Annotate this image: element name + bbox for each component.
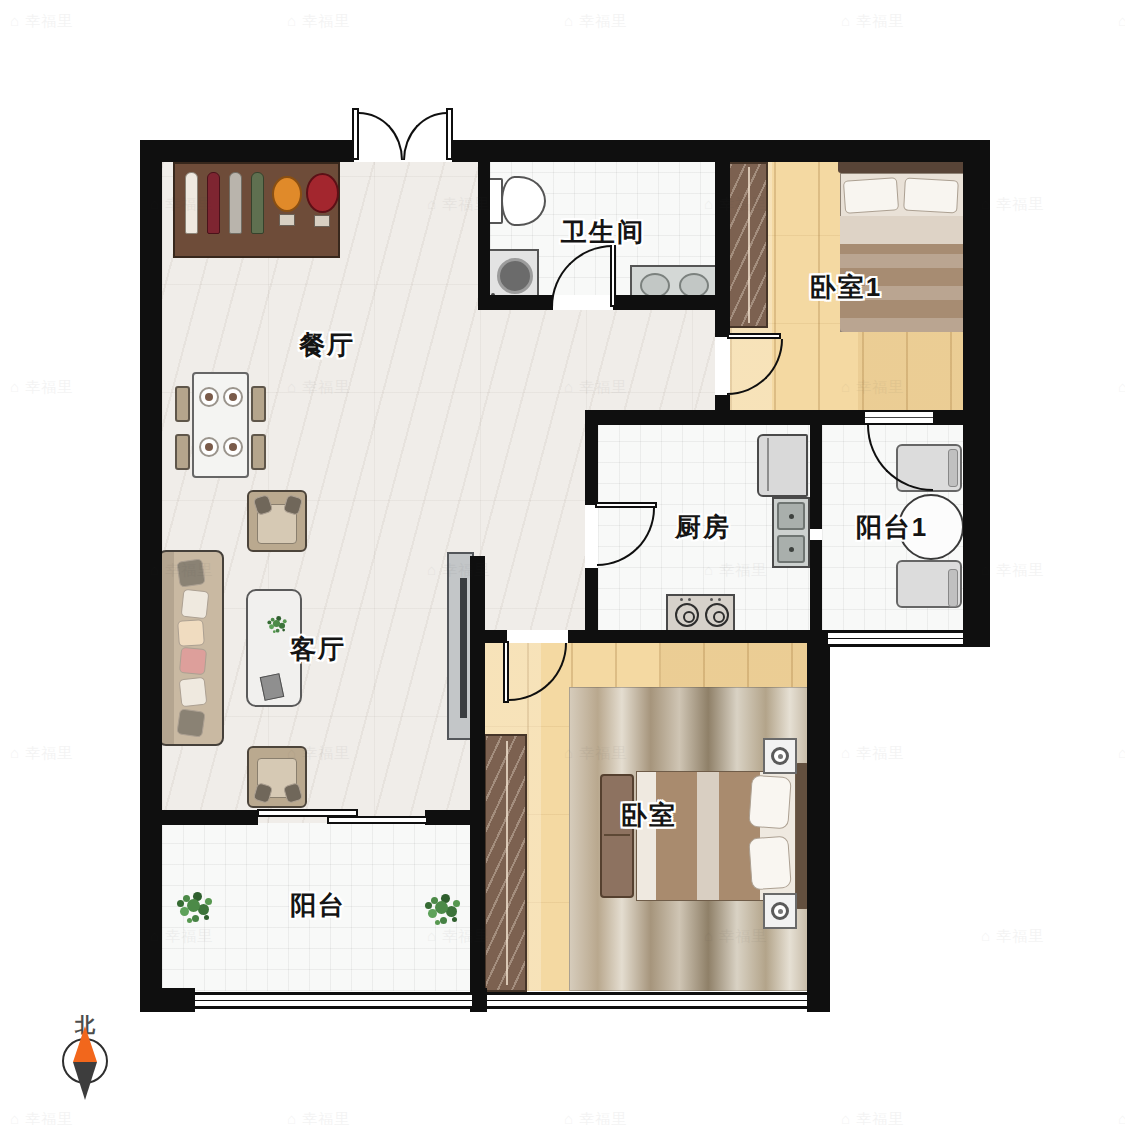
wall-bottom-left-corner	[140, 988, 195, 1012]
dining-chair	[175, 386, 190, 422]
wall-bedroom-right	[807, 630, 830, 1012]
watermark: ⌂ 幸福里	[1118, 744, 1125, 763]
bed-pillow	[748, 775, 792, 830]
watermark: ⌂ 幸福里	[1118, 12, 1125, 31]
potted-plant	[187, 899, 200, 912]
bed-pillow	[748, 836, 792, 891]
table-flowers	[273, 620, 280, 627]
sofa-pillow	[177, 619, 205, 647]
bottle	[251, 172, 264, 234]
wall-bedroom-top-right	[568, 630, 828, 643]
nightstand-lamp	[771, 902, 789, 920]
sink-basin	[777, 535, 805, 563]
stove-knob	[710, 598, 713, 601]
place-setting	[199, 387, 219, 407]
kitchen-sink-unit	[772, 497, 810, 568]
nightstand	[763, 738, 797, 774]
wall-bathroom-bottom-right	[613, 295, 717, 310]
balcony1-door-threshold	[865, 410, 933, 425]
bottle	[185, 172, 198, 234]
watermark: ⌂ 幸福里	[10, 1110, 73, 1125]
armchair	[247, 490, 307, 552]
bedroom-door-leaf	[503, 641, 509, 703]
place-setting	[223, 387, 243, 407]
vase-stand	[314, 215, 330, 227]
wall-right	[963, 140, 990, 647]
wall-kitchen-right-lower	[810, 540, 822, 632]
wall-kitchen-left-upper	[585, 423, 598, 505]
bottle	[229, 172, 242, 234]
room-label-bathroom: 卫生间	[561, 215, 645, 250]
dining-table	[192, 372, 249, 478]
sofa-pillow	[179, 647, 207, 675]
stove-knob	[688, 598, 691, 601]
fridge-door-line	[767, 438, 769, 491]
bedroom1-bed	[838, 160, 967, 332]
bed-pillow	[843, 177, 899, 214]
compass-needle-south	[73, 1062, 97, 1100]
balcony-slider-panel	[327, 816, 428, 824]
place-setting	[223, 437, 243, 457]
potted-plant	[435, 901, 448, 914]
watermark: ⌂ 幸福里	[1118, 378, 1125, 397]
chair-back	[948, 449, 958, 487]
table-tray	[260, 673, 285, 701]
bedroom1-wardrobe	[728, 162, 768, 328]
place-setting	[199, 437, 219, 457]
wall-bathroom-left	[478, 162, 490, 302]
kitchen-pass-through	[810, 529, 822, 540]
room-label-living: 客厅	[290, 632, 346, 667]
wall-balcony1-top-stub	[933, 410, 963, 425]
tv-screen	[460, 578, 467, 718]
watermark: ⌂ 幸福里	[981, 561, 1044, 580]
bedroom-door-gap	[507, 630, 568, 643]
watermark: ⌂ 幸福里	[981, 195, 1044, 214]
wall-living-bedroom-divider	[470, 556, 485, 1012]
armchair	[247, 746, 307, 808]
watermark: ⌂ 幸福里	[981, 927, 1044, 946]
watermark: ⌂ 幸福里	[841, 12, 904, 31]
wall-kitchen-left-lower	[585, 568, 598, 631]
bedroom-bed	[636, 763, 810, 909]
watermark: ⌂ 幸福里	[1118, 1110, 1125, 1125]
vase-stand	[279, 214, 295, 226]
room-label-bedroom1: 卧室1	[810, 270, 882, 305]
decor-vase-orange	[272, 176, 302, 212]
stove-knob	[680, 598, 683, 601]
bed-pillow	[903, 178, 959, 214]
watermark: ⌂ 幸福里	[841, 744, 904, 763]
watermark: ⌂ 幸福里	[10, 744, 73, 763]
dining-chair	[251, 386, 266, 422]
sofa-pillow	[181, 589, 210, 620]
armchair-pillow	[283, 782, 303, 804]
washer-drum	[497, 258, 533, 294]
balcony1-window	[828, 630, 963, 647]
wardrobe-rail	[506, 741, 508, 985]
balcony-chair	[896, 560, 962, 608]
wall-left	[140, 140, 162, 1012]
room-label-balcony: 阳台	[290, 888, 346, 923]
decor-vase-red	[306, 173, 339, 213]
wall-kitchen-right-upper	[810, 423, 822, 529]
room-label-bedroom: 卧室	[621, 798, 677, 833]
bottle	[207, 172, 220, 234]
entry-door-swing-right	[403, 112, 447, 160]
watermark: ⌂ 幸福里	[841, 1110, 904, 1125]
room-label-kitchen: 厨房	[675, 510, 731, 545]
stove-knob	[718, 598, 721, 601]
bedroom1-door-leaf	[727, 333, 781, 339]
wall-top-left	[140, 140, 354, 162]
nightstand-lamp	[771, 747, 789, 765]
balcony-window	[195, 992, 472, 1009]
sofa-pillow	[176, 708, 205, 737]
wine-cabinet	[173, 162, 340, 258]
bedroom-window	[487, 992, 807, 1009]
room-label-balcony1: 阳台1	[856, 510, 928, 545]
watermark: ⌂ 幸福里	[287, 12, 350, 31]
nightstand	[763, 893, 797, 929]
chair-back	[948, 569, 958, 607]
entry-door-leaf-right	[446, 108, 453, 160]
sofa	[158, 550, 224, 746]
wall-bathroom-bottom-left	[478, 295, 553, 310]
sink-basin	[777, 502, 805, 530]
entry-door-leaf-left	[352, 108, 359, 160]
sheet-fold	[840, 216, 965, 244]
refrigerator	[757, 434, 808, 497]
wall-balcony-top-left	[162, 810, 258, 825]
stove-burner	[705, 603, 729, 627]
sofa-back	[160, 552, 174, 744]
bench-split	[604, 834, 630, 836]
wall-bedroom1-left-upper	[715, 140, 730, 337]
compass-needle-north	[73, 1026, 97, 1062]
watermark: ⌂ 幸福里	[10, 378, 73, 397]
room-label-dining: 餐厅	[299, 328, 355, 363]
watermark: ⌂ 幸福里	[287, 1110, 350, 1125]
gas-stove	[666, 594, 735, 632]
watermark: ⌂ 幸福里	[10, 12, 73, 31]
dining-chair	[175, 434, 190, 470]
wall-kitchen-top	[585, 410, 865, 425]
stove-burner	[675, 603, 699, 627]
bathroom-door-leaf	[610, 243, 616, 307]
armchair-pillow	[253, 782, 273, 804]
floor-plan: 餐厅 卫生间 卧室1 厨房 阳台1 客厅 卧室 阳台 北 ⌂ 幸福里⌂ 幸福里⌂…	[0, 0, 1125, 1125]
wardrobe-rail	[748, 167, 750, 323]
watermark: ⌂ 幸福里	[564, 1110, 627, 1125]
sofa-pillow	[179, 677, 208, 708]
wall-balcony-top-right	[425, 810, 470, 825]
dining-chair	[251, 434, 266, 470]
bedroom-wardrobe	[484, 734, 527, 992]
watermark: ⌂ 幸福里	[564, 12, 627, 31]
entry-door-swing-left	[359, 112, 403, 160]
bed-bench	[600, 774, 634, 898]
sofa-pillow	[176, 558, 205, 587]
kitchen-door-leaf	[595, 502, 657, 508]
